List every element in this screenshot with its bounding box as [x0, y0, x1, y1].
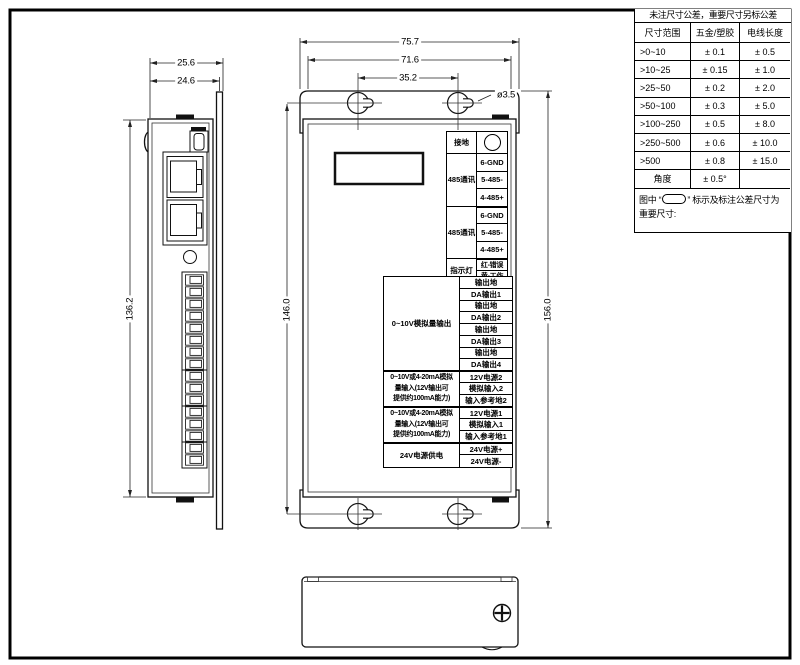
case-clip-tab	[492, 115, 509, 120]
pin-label: DA输出4	[460, 359, 512, 371]
tolerance-table-grid: 尺寸范围 五金/塑胶 电线长度 >0~10 ± 0.1 ± 0.5 >10~25…	[635, 23, 791, 189]
table-cell: >250~500	[635, 134, 691, 152]
table-cell: ± 0.6	[691, 134, 740, 152]
table-cell: 角度	[635, 170, 691, 188]
important-dim-oval-icon	[662, 194, 686, 204]
pin-label: DA输出3	[460, 336, 512, 348]
pin-label: 24V电源+	[460, 443, 512, 455]
pin-label: 红-错误	[477, 259, 507, 271]
case-clip-tab	[492, 498, 509, 503]
case-clip-tab	[176, 115, 194, 120]
table-cell: >500	[635, 152, 691, 170]
table-cell: ± 0.5	[691, 116, 740, 134]
terminal-group-label: 0~10V模拟量输出	[384, 277, 460, 371]
pin-label: 输入参考地2	[460, 395, 512, 407]
side-view	[123, 58, 223, 529]
pin-label: 4-485+	[477, 189, 507, 207]
table-cell: >0~10	[635, 43, 691, 61]
tolerance-note: 图中 “” 标示及标注公差尺寸为 重要尺寸:	[635, 189, 791, 221]
pin-label: 12V电源2	[460, 371, 512, 383]
label-line: 0~10V或4-20mA模拟	[390, 373, 453, 384]
pin-label: 6-GND	[477, 154, 507, 172]
dim-depth-body: 24.6	[175, 76, 197, 87]
column-header: 尺寸范围	[635, 23, 691, 43]
bottom-body	[302, 577, 518, 647]
dim-depth-overall: 25.6	[175, 58, 197, 69]
pin-label: 4-485+	[477, 242, 507, 260]
pin-label: DA输出2	[460, 312, 512, 324]
pin-label: 24V电源-	[460, 455, 512, 467]
tolerance-table: 未注尺寸公差，重要尺寸另标公差 尺寸范围 五金/塑胶 电线长度 >0~10 ± …	[634, 9, 791, 233]
dim-hole-pitch-x: 35.2	[397, 73, 419, 84]
lower-terminal-table: 0~10V模拟量输出 输出地 DA输出1 输出地 DA输出2 输出地 DA输出3…	[383, 276, 513, 468]
note-line2: 重要尺寸:	[639, 207, 787, 221]
pin-label: 模拟输入2	[460, 383, 512, 395]
table-cell: ± 0.5°	[691, 170, 740, 188]
pin-label: 5-485-	[477, 224, 507, 242]
label-line: 0~10V或4-20mA模拟	[390, 409, 453, 420]
table-cell: >100~250	[635, 116, 691, 134]
engineering-drawing-sheet: 75.7 71.6 35.2 ø3.5 25.6 24.6 136.2 146.…	[0, 0, 800, 665]
table-cell: >25~50	[635, 79, 691, 97]
terminal-group-label: 接地	[447, 132, 477, 154]
table-cell: ± 1.0	[740, 61, 790, 79]
dim-hole-pitch-y: 146.0	[282, 297, 293, 324]
pin-label: 输入参考地1	[460, 431, 512, 443]
terminal-group-label: 485通讯	[447, 207, 477, 260]
column-header: 电线长度	[740, 23, 790, 43]
table-cell: ± 0.1	[691, 43, 740, 61]
note-prefix: 图中 “	[639, 195, 661, 205]
pin-label: 5-485-	[477, 172, 507, 190]
terminal-group-label: 485通讯	[447, 154, 477, 207]
terminal-group-label: 0~10V或4-20mA模拟 量输入(12V输出可 提供约100mA能力)	[384, 371, 460, 407]
upper-terminal-table: 接地 485通讯 6-GND 5-485- 4-485+ 485通讯 6-GND…	[446, 131, 508, 283]
table-cell: ± 10.0	[740, 134, 790, 152]
dim-side-height: 136.2	[125, 296, 136, 323]
table-cell: ± 0.15	[691, 61, 740, 79]
table-cell	[740, 170, 790, 188]
table-cell: ± 2.0	[740, 79, 790, 97]
table-cell: ± 0.8	[691, 152, 740, 170]
bracket-edge-plate	[217, 92, 223, 529]
pin-label: 输出地	[460, 348, 512, 360]
display-window	[335, 153, 423, 184]
column-header: 五金/塑胶	[691, 23, 740, 43]
label-line: 提供约100mA能力)	[393, 430, 450, 441]
pin-label: DA输出1	[460, 289, 512, 301]
ground-screw-icon	[484, 134, 501, 151]
pin-label: 输出地	[460, 324, 512, 336]
dim-width-overall: 75.7	[399, 37, 421, 48]
table-cell: ± 5.0	[740, 98, 790, 116]
terminal-group-label: 0~10V或4-20mA模拟 量输入(12V输出可 提供约100mA能力)	[384, 407, 460, 443]
note-suffix: ” 标示及标注公差尺寸为	[687, 195, 779, 205]
tolerance-table-title: 未注尺寸公差，重要尺寸另标公差	[635, 9, 791, 23]
pin-label: 输出地	[460, 301, 512, 313]
terminal-group-label: 24V电源供电	[384, 443, 460, 467]
label-line: 量输入(12V输出可	[395, 384, 449, 395]
table-cell: ± 0.2	[691, 79, 740, 97]
pin-label: 模拟输入1	[460, 419, 512, 431]
table-cell: ± 0.3	[691, 98, 740, 116]
pin-label: 输出地	[460, 277, 512, 289]
dim-hole-diameter: ø3.5	[495, 90, 517, 101]
label-line: 提供约100mA能力)	[393, 394, 450, 405]
table-cell: >50~100	[635, 98, 691, 116]
pin-label: 12V电源1	[460, 407, 512, 419]
pin-label: 6-GND	[477, 207, 507, 225]
table-cell: ± 8.0	[740, 116, 790, 134]
table-cell: ± 15.0	[740, 152, 790, 170]
bottom-view	[302, 577, 518, 650]
case-clip-tab	[176, 498, 194, 503]
screw-icon	[494, 605, 511, 622]
label-line: 量输入(12V输出可	[395, 420, 449, 431]
ground-terminal-cell	[477, 132, 507, 154]
table-cell: >10~25	[635, 61, 691, 79]
dim-height-overall: 156.0	[543, 297, 554, 324]
dim-width-inner: 71.6	[399, 55, 421, 66]
table-cell: ± 0.5	[740, 43, 790, 61]
